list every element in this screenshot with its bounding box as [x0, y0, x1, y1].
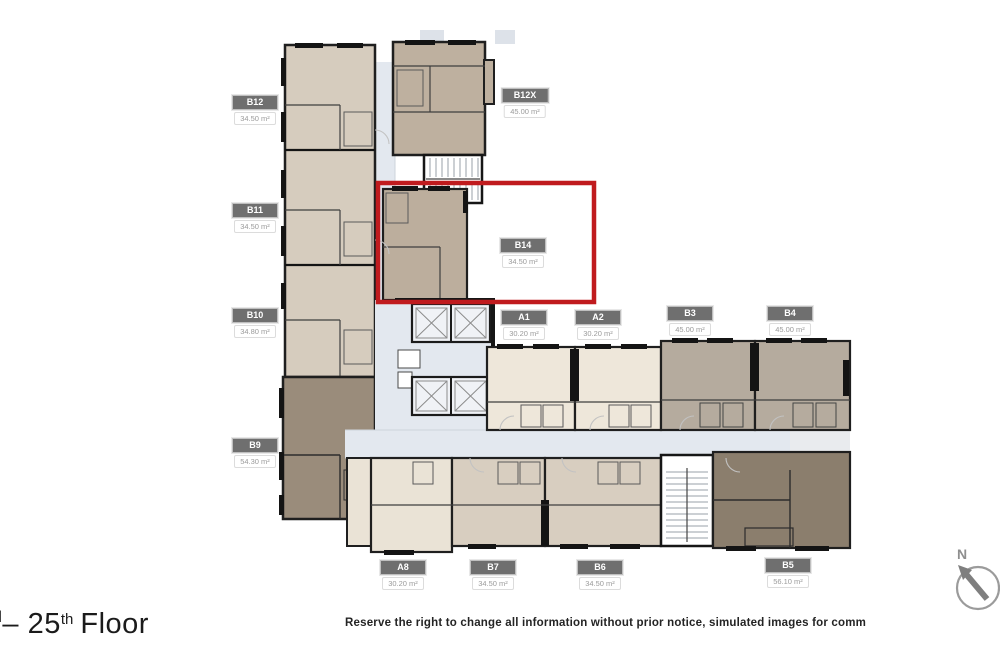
unit-label-b12x[interactable]: B12X 45.00 m²	[502, 88, 549, 118]
unit-label-b4[interactable]: B4 45.00 m²	[767, 306, 813, 336]
unit-id: B6	[577, 560, 623, 575]
compass-needle	[966, 574, 987, 599]
unit-area: 34.50 m²	[234, 112, 276, 125]
disclaimer-text: Reserve the right to change all informat…	[345, 617, 866, 629]
unit-a1-shape	[487, 347, 575, 430]
unit-area: 30.20 m²	[503, 327, 545, 340]
elevator-bank-lower	[412, 377, 490, 415]
unit-area: 34.50 m²	[234, 220, 276, 233]
unit-label-b9[interactable]: B9 54.30 m²	[232, 438, 278, 468]
unit-label-b7[interactable]: B7 34.50 m²	[470, 560, 516, 590]
unit-id: B7	[470, 560, 516, 575]
unit-id: B14	[500, 238, 546, 253]
unit-id: B12	[232, 95, 278, 110]
unit-area: 34.80 m²	[234, 325, 276, 338]
unit-id: B3	[667, 306, 713, 321]
floor-title-word: Floor	[80, 608, 149, 640]
unit-label-a1[interactable]: A1 30.20 m²	[501, 310, 547, 340]
bottom-wing-lower-row	[347, 452, 850, 555]
unit-area: 30.20 m²	[382, 577, 424, 590]
floor-plan-page: B12 34.50 m² B11 34.50 m² B10 34.80 m² B…	[0, 0, 1000, 656]
bottom-wing-upper-row	[487, 338, 850, 430]
unit-area: 45.00 m²	[769, 323, 811, 336]
compass-north-label: N	[957, 546, 967, 562]
unit-label-b11[interactable]: B11 34.50 m²	[232, 203, 278, 233]
unit-id: B5	[765, 558, 811, 573]
unit-id: B11	[232, 203, 278, 218]
floor-title: d– 25thFloor	[0, 608, 149, 641]
floor-plan-drawing	[0, 0, 1000, 656]
unit-area: 34.50 m²	[472, 577, 514, 590]
unit-a2-shape	[575, 347, 661, 430]
unit-id: A8	[380, 560, 426, 575]
unit-b3-shape	[661, 341, 755, 430]
compass: N	[935, 540, 1000, 625]
unit-id: B10	[232, 308, 278, 323]
unit-b6-shape	[545, 458, 661, 546]
unit-label-b5[interactable]: B5 56.10 m²	[765, 558, 811, 588]
unit-area: 34.50 m²	[579, 577, 621, 590]
unit-label-b3[interactable]: B3 45.00 m²	[667, 306, 713, 336]
unit-id: A2	[575, 310, 621, 325]
unit-area: 34.50 m²	[502, 255, 544, 268]
stair-core-bottom	[661, 455, 713, 546]
elevator-bank-upper	[412, 304, 490, 342]
unit-area: 54.30 m²	[234, 455, 276, 468]
unit-label-b6[interactable]: B6 34.50 m²	[577, 560, 623, 590]
unit-id: B4	[767, 306, 813, 321]
unit-label-a8[interactable]: A8 30.20 m²	[380, 560, 426, 590]
unit-id: B12X	[502, 88, 549, 103]
unit-area: 56.10 m²	[767, 575, 809, 588]
unit-label-b14-highlighted[interactable]: B14 34.50 m²	[500, 238, 546, 268]
unit-b14-shape	[383, 186, 468, 300]
floor-title-number: – 25	[2, 608, 60, 640]
unit-id: B9	[232, 438, 278, 453]
unit-b5-shape	[713, 452, 850, 548]
unit-b12x-shape	[393, 40, 494, 155]
unit-area: 45.00 m²	[504, 105, 546, 118]
unit-label-b10[interactable]: B10 34.80 m²	[232, 308, 278, 338]
unit-id: A1	[501, 310, 547, 325]
floor-title-ordinal: th	[61, 611, 74, 628]
unit-area: 30.20 m²	[577, 327, 619, 340]
unit-label-a2[interactable]: A2 30.20 m²	[575, 310, 621, 340]
unit-area: 45.00 m²	[669, 323, 711, 336]
unit-label-b12[interactable]: B12 34.50 m²	[232, 95, 278, 125]
